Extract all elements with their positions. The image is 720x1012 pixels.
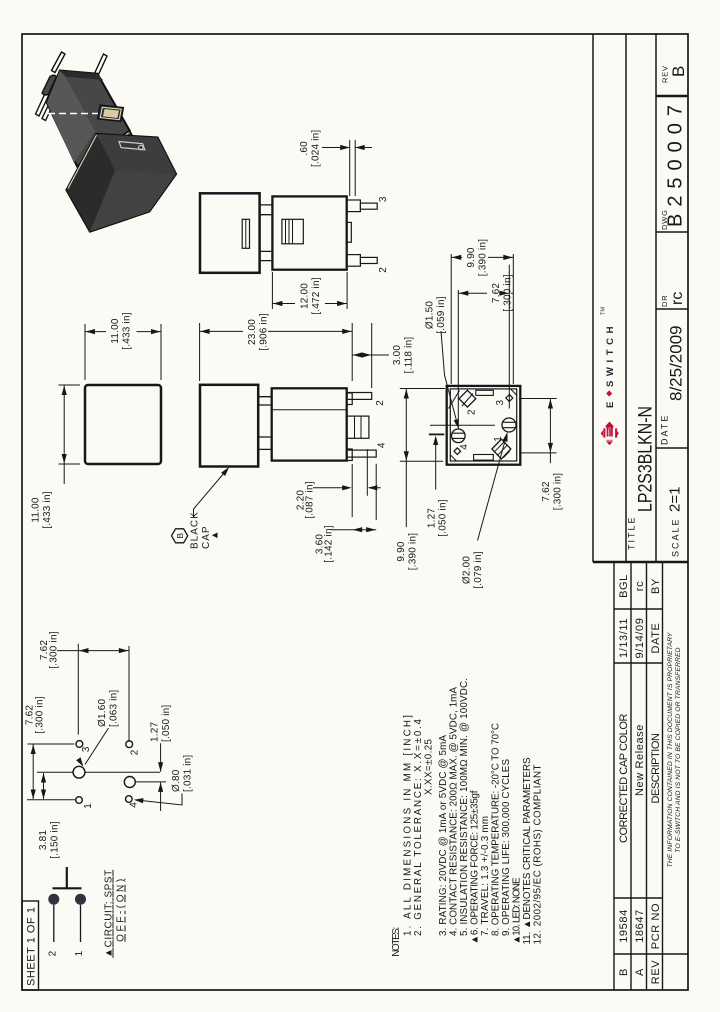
svg-text:9.90: 9.90 bbox=[396, 541, 407, 562]
svg-text:▲10. LED: NONE: ▲10. LED: NONE bbox=[512, 877, 523, 944]
svg-text:1: 1 bbox=[74, 950, 85, 956]
svg-text:9. OPERATING LIFE: 300,000 CYC: 9. OPERATING LIFE: 300,000 CYCLES bbox=[501, 759, 512, 936]
svg-text:4. CONTACT RESISTANCE: 200Ω MA: 4. CONTACT RESISTANCE: 200Ω MAX. @ 5VDC,… bbox=[449, 687, 460, 936]
svg-text:PCR NO: PCR NO bbox=[650, 903, 662, 949]
svg-text:NOTES:: NOTES: bbox=[391, 927, 402, 957]
svg-text:3. RATING: 20VDC @ 1mA or 5VDC: 3. RATING: 20VDC @ 1mA or 5VDC @ 5mA bbox=[438, 735, 449, 936]
svg-text:[.031 in]: [.031 in] bbox=[183, 755, 194, 792]
svg-text:5. INSULATION RESISTANCE: 100M: 5. INSULATION RESISTANCE: 100MΩ MIN. @ 1… bbox=[459, 678, 470, 936]
svg-text:[.472 in]: [.472 in] bbox=[311, 277, 322, 314]
svg-text:TITLE: TITLE bbox=[627, 515, 637, 550]
svg-text:CORRECTED CAP COLOR: CORRECTED CAP COLOR bbox=[618, 713, 630, 843]
svg-text:B: B bbox=[618, 968, 630, 976]
svg-text:[.390 in]: [.390 in] bbox=[408, 533, 419, 570]
svg-text:8/25/2009: 8/25/2009 bbox=[667, 325, 686, 401]
svg-text:DR: DR bbox=[660, 295, 669, 307]
svg-text:11. ▲DENOTES CRITICAL PARAMETE: 11. ▲DENOTES CRITICAL PARAMETERS bbox=[522, 757, 533, 944]
svg-text:[.300 in]: [.300 in] bbox=[49, 631, 60, 668]
svg-text:SCALE: SCALE bbox=[671, 517, 681, 557]
svg-text:THE INFORMATION CONTAINED IN T: THE INFORMATION CONTAINED IN THIS DOCUME… bbox=[667, 632, 674, 867]
svg-text:4: 4 bbox=[129, 802, 140, 808]
svg-text:TO E-SWITCH AND IS NOT TO BE C: TO E-SWITCH AND IS NOT TO BE COPIED OR T… bbox=[675, 647, 682, 852]
svg-text:1.27: 1.27 bbox=[427, 508, 438, 529]
svg-text:rc: rc bbox=[634, 581, 646, 591]
svg-text:2: 2 bbox=[47, 950, 58, 956]
svg-text:[.150 in]: [.150 in] bbox=[50, 821, 61, 858]
svg-text:7.62: 7.62 bbox=[491, 283, 502, 304]
svg-text:B: B bbox=[669, 65, 688, 77]
svg-text:4: 4 bbox=[377, 442, 388, 448]
svg-text:SHEET 1 OF 1: SHEET 1 OF 1 bbox=[26, 907, 38, 986]
svg-text:2=1: 2=1 bbox=[667, 487, 684, 512]
svg-text:3.81: 3.81 bbox=[38, 830, 49, 851]
svg-text:12. 2002/95/EC (ROHS) COMPLIAN: 12. 2002/95/EC (ROHS) COMPLIANT bbox=[533, 764, 544, 944]
svg-text:▲: ▲ bbox=[210, 531, 221, 540]
svg-text:1: 1 bbox=[83, 803, 94, 809]
svg-text:2: 2 bbox=[378, 267, 389, 273]
svg-text:1/13/11: 1/13/11 bbox=[618, 618, 630, 658]
svg-text:▲6. OPERATING FORCE: 125±35gf: ▲6. OPERATING FORCE: 125±35gf bbox=[470, 790, 481, 944]
svg-text:9.90: 9.90 bbox=[466, 247, 477, 268]
svg-text:REV: REV bbox=[650, 960, 662, 984]
svg-text:[.390 in]: [.390 in] bbox=[478, 239, 489, 276]
svg-text:3: 3 bbox=[495, 399, 506, 405]
svg-text:4: 4 bbox=[459, 444, 470, 450]
svg-text:DESCRIPTION: DESCRIPTION bbox=[650, 733, 662, 804]
svg-text:B: B bbox=[175, 533, 185, 539]
svg-text:[.433 in]: [.433 in] bbox=[122, 312, 133, 349]
svg-text:3: 3 bbox=[81, 746, 92, 752]
svg-text:DATE: DATE bbox=[650, 623, 662, 654]
svg-text:18647: 18647 bbox=[634, 909, 646, 943]
svg-text:8. OPERATING TEMPERATURE: -20°: 8. OPERATING TEMPERATURE: -20°C TO 70°C bbox=[491, 723, 502, 936]
svg-text:23.00: 23.00 bbox=[247, 319, 258, 345]
svg-text:11.00: 11.00 bbox=[110, 318, 121, 344]
svg-text:X.XX=±0.25: X.XX=±0.25 bbox=[424, 738, 435, 795]
svg-text:[.118 in]: [.118 in] bbox=[404, 337, 415, 374]
svg-text:TM: TM bbox=[601, 307, 607, 315]
svg-text:rc: rc bbox=[669, 292, 686, 305]
svg-text:[.050 in]: [.050 in] bbox=[438, 499, 449, 536]
svg-text:[.024 in]: [.024 in] bbox=[311, 130, 322, 167]
svg-text:[.433 in]: [.433 in] bbox=[42, 491, 53, 528]
svg-text:A: A bbox=[634, 968, 646, 976]
svg-text:[.087 in]: [.087 in] bbox=[305, 481, 316, 518]
svg-text:New Release: New Release bbox=[634, 724, 646, 796]
svg-text:.60: .60 bbox=[299, 141, 310, 156]
svg-text:Ø1.50: Ø1.50 bbox=[425, 301, 436, 329]
svg-text:LP2S3BLKN-N: LP2S3BLKN-N bbox=[636, 406, 657, 512]
svg-text:1.27: 1.27 bbox=[150, 721, 161, 742]
svg-text:[.906 in]: [.906 in] bbox=[259, 313, 270, 350]
svg-text:[.300 in]: [.300 in] bbox=[553, 473, 564, 510]
svg-text:[.300 in]: [.300 in] bbox=[35, 696, 46, 733]
svg-text:2: 2 bbox=[375, 400, 386, 406]
svg-text:3: 3 bbox=[378, 196, 389, 202]
svg-text:E: E bbox=[605, 397, 616, 408]
svg-text:[.142 in]: [.142 in] bbox=[324, 525, 335, 562]
svg-text:▲CIRCUIT: SPST: ▲CIRCUIT: SPST bbox=[104, 870, 115, 958]
svg-text:[.063 in]: [.063 in] bbox=[109, 690, 120, 727]
svg-text:SWITCH: SWITCH bbox=[605, 322, 616, 387]
svg-text:Ø2.00: Ø2.00 bbox=[462, 556, 473, 584]
svg-text:7.62: 7.62 bbox=[541, 481, 552, 502]
svg-text:Ø1.60: Ø1.60 bbox=[97, 699, 108, 727]
svg-text:Ø.80: Ø.80 bbox=[171, 769, 182, 792]
svg-text:7. TRAVEL: 1.3 +/-0.3 mm: 7. TRAVEL: 1.3 +/-0.3 mm bbox=[480, 816, 491, 936]
svg-text:19584: 19584 bbox=[618, 909, 630, 943]
svg-text:BLACK: BLACK bbox=[190, 511, 201, 549]
svg-text:[.300 in]: [.300 in] bbox=[503, 274, 514, 311]
svg-text:11.00: 11.00 bbox=[31, 497, 42, 523]
svg-text:[.059 in]: [.059 in] bbox=[436, 296, 447, 333]
svg-text:BY: BY bbox=[650, 578, 662, 594]
svg-text:12.00: 12.00 bbox=[300, 283, 311, 309]
svg-text:DATE: DATE bbox=[660, 414, 670, 445]
svg-text:BGL: BGL bbox=[618, 574, 630, 598]
svg-text:2: 2 bbox=[467, 409, 478, 415]
svg-text:2: 2 bbox=[130, 749, 141, 755]
svg-text:3.00: 3.00 bbox=[392, 345, 403, 366]
svg-text:[.050 in]: [.050 in] bbox=[161, 705, 172, 742]
svg-text:[.079 in]: [.079 in] bbox=[473, 551, 484, 588]
svg-text:9/14/09: 9/14/09 bbox=[634, 618, 646, 659]
